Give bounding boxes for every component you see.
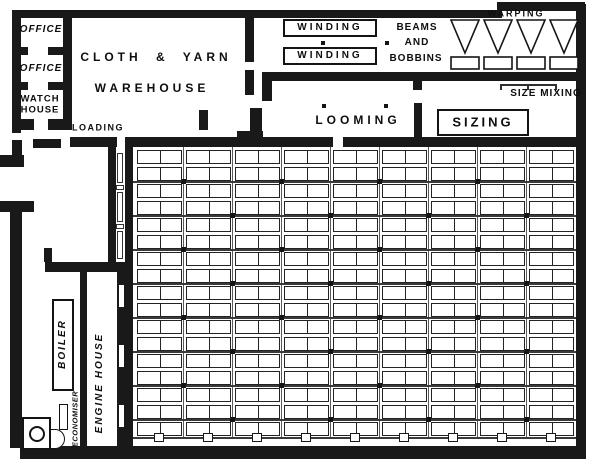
loom-unit (529, 201, 574, 215)
loom-unit (284, 252, 329, 266)
loom-unit (382, 201, 427, 215)
economiser-box (59, 404, 68, 430)
loom-unit (382, 286, 427, 300)
shed-alley-line (232, 147, 233, 437)
shaft-alley-wall (108, 147, 116, 262)
loom-unit (186, 286, 231, 300)
cross-shaft-line (133, 419, 576, 421)
loom-unit (333, 320, 378, 334)
warping-mill-triangle (517, 20, 545, 53)
loom-unit (431, 269, 476, 283)
loom-unit (480, 167, 525, 181)
engine-house-label: ENGINE HOUSE (95, 333, 105, 434)
loom-unit (480, 184, 525, 198)
wall (63, 90, 72, 120)
loom-unit (235, 269, 280, 283)
wall (48, 82, 72, 90)
loom-unit (333, 354, 378, 368)
wall (63, 55, 72, 83)
loom-unit (382, 218, 427, 232)
loom-unit (333, 269, 378, 283)
loom-unit (382, 337, 427, 351)
loom-unit (284, 167, 329, 181)
loom-unit (382, 167, 427, 181)
shed-column-footing (350, 433, 360, 442)
loom-unit (186, 405, 231, 419)
column-dot (322, 104, 326, 108)
loom-unit (137, 252, 182, 266)
loom-unit (137, 286, 182, 300)
warehouse-label-line1: CLOTH & YARN (80, 51, 231, 63)
winding-label-a: WINDING (297, 23, 362, 33)
shaft-alley-wall (125, 147, 133, 448)
cross-shaft-line (133, 181, 576, 183)
loom-unit (284, 201, 329, 215)
loom-unit (284, 303, 329, 317)
loom-unit (235, 252, 280, 266)
shed-alley-line (379, 147, 380, 437)
weaving-shed (133, 147, 576, 448)
shed-column-footing (203, 433, 213, 442)
loom-unit (480, 235, 525, 249)
loom-unit (137, 371, 182, 385)
loom-unit (333, 252, 378, 266)
loom-unit (186, 337, 231, 351)
loom-unit (137, 320, 182, 334)
loom-unit (186, 388, 231, 402)
loom-unit (284, 184, 329, 198)
loom-unit (480, 354, 525, 368)
loom-unit (529, 337, 574, 351)
loom-unit (529, 405, 574, 419)
loom-unit (186, 184, 231, 198)
loom-unit (186, 371, 231, 385)
loom-unit (480, 252, 525, 266)
office-top-label: OFFICE (20, 25, 63, 35)
loom-unit (186, 201, 231, 215)
loom-unit (431, 320, 476, 334)
shed-alley-line (526, 147, 527, 437)
loom-unit (186, 235, 231, 249)
size-mixing-bracket-tick (500, 84, 502, 90)
and-label: AND (405, 38, 430, 48)
column-dot (385, 41, 389, 45)
cross-shaft-line (133, 249, 576, 251)
shed-alley-line (281, 147, 282, 437)
wall (12, 10, 502, 18)
bobbins-label: BOBBINS (389, 54, 442, 64)
loom-unit (529, 286, 574, 300)
wall (33, 139, 61, 148)
wall (262, 81, 272, 101)
looming-label: LOOMING (315, 114, 400, 126)
warping-beam-box (451, 57, 479, 69)
shed-column-footing (252, 433, 262, 442)
wall (48, 47, 72, 55)
winding-label-b: WINDING (297, 51, 362, 61)
loom-unit (186, 252, 231, 266)
wall (10, 201, 22, 448)
watch-house-label-line1: WATCH (20, 94, 59, 104)
cross-shaft-line (133, 317, 576, 319)
wall (245, 10, 254, 62)
warehouse-label-line2: WAREHOUSE (95, 82, 210, 94)
loom-unit (431, 286, 476, 300)
cross-shaft-line (133, 215, 576, 217)
loom-unit (431, 337, 476, 351)
column-pillar (413, 81, 422, 90)
warping-mill-triangle (484, 20, 512, 53)
loom-unit (333, 235, 378, 249)
loom-unit (137, 354, 182, 368)
loom-unit (431, 201, 476, 215)
loom-unit (137, 201, 182, 215)
loom-unit (235, 286, 280, 300)
loom-unit (186, 218, 231, 232)
loom-unit (137, 303, 182, 317)
warping-machines (448, 19, 582, 71)
loom-unit (137, 269, 182, 283)
loom-unit (137, 184, 182, 198)
loom-unit (284, 269, 329, 283)
loom-unit (480, 320, 525, 334)
loom-unit (480, 269, 525, 283)
loom-unit (235, 405, 280, 419)
warping-label: WARPING (487, 10, 544, 19)
loom-unit (137, 150, 182, 164)
loom-unit (137, 167, 182, 181)
engine-house-north-wall (45, 262, 117, 272)
loom-unit (333, 303, 378, 317)
loom-unit (333, 184, 378, 198)
wall (12, 47, 28, 55)
loom-unit (284, 150, 329, 164)
warping-beam-box (484, 57, 512, 69)
loom-unit (137, 235, 182, 249)
loom-unit (529, 184, 574, 198)
loom-unit (480, 150, 525, 164)
loom-unit (137, 388, 182, 402)
loom-unit (333, 388, 378, 402)
loom-unit (235, 184, 280, 198)
loom-unit (284, 337, 329, 351)
loom-unit (137, 405, 182, 419)
loom-unit (284, 354, 329, 368)
loom-unit (431, 405, 476, 419)
loom-unit (284, 405, 329, 419)
loom-unit (235, 218, 280, 232)
loom-unit (529, 252, 574, 266)
loom-unit (186, 354, 231, 368)
loom-unit (382, 371, 427, 385)
window-slit (119, 345, 124, 367)
loom-unit (235, 388, 280, 402)
cross-shaft-line (133, 385, 576, 387)
loom-unit (431, 218, 476, 232)
cross-shaft-line (133, 283, 576, 285)
window-slit (119, 405, 124, 427)
loom-unit (431, 354, 476, 368)
loom-unit (382, 150, 427, 164)
loom-unit (480, 303, 525, 317)
window-slit (119, 285, 124, 307)
loom-unit (382, 184, 427, 198)
loom-unit (382, 388, 427, 402)
shed-column-footing (546, 433, 556, 442)
size-mixing-label: SIZE MIXING (510, 89, 582, 99)
chimney-circle (29, 426, 45, 442)
wall (63, 10, 72, 48)
loom-unit (431, 235, 476, 249)
loading-pillar (199, 110, 208, 130)
loom-unit (529, 354, 574, 368)
loom-unit (186, 150, 231, 164)
loom-unit (235, 303, 280, 317)
warping-beam-box (550, 57, 578, 69)
loom-unit (529, 218, 574, 232)
loom-unit (186, 167, 231, 181)
loom-unit (235, 371, 280, 385)
loom-unit (480, 388, 525, 402)
loom-unit (382, 405, 427, 419)
loom-unit (235, 167, 280, 181)
loom-unit (284, 286, 329, 300)
wall (44, 248, 52, 262)
loom-unit (431, 371, 476, 385)
loom-unit (529, 320, 574, 334)
loom-unit (529, 167, 574, 181)
loom-unit (382, 252, 427, 266)
loom-unit (137, 337, 182, 351)
loom-unit (382, 303, 427, 317)
watch-house-label-line2: HOUSE (21, 105, 60, 115)
loom-unit (382, 320, 427, 334)
sizing-label: SIZING (452, 116, 513, 129)
loom-unit (333, 167, 378, 181)
loom-unit (284, 320, 329, 334)
yard-gate-post (12, 140, 22, 167)
loom-unit (284, 371, 329, 385)
shed-column-footing (448, 433, 458, 442)
shed-alley-line (183, 147, 184, 437)
beams-label: BEAMS (396, 23, 437, 33)
loom-unit (529, 371, 574, 385)
shed-column-footing (154, 433, 164, 442)
boiler-engine-divider-wall (80, 272, 87, 448)
shaft-coupling (116, 185, 124, 190)
drive-shaft-segment (117, 192, 123, 222)
loom-unit (480, 405, 525, 419)
loom-unit (235, 354, 280, 368)
loom-unit (333, 337, 378, 351)
loom-unit (480, 286, 525, 300)
loom-unit (382, 235, 427, 249)
loom-unit (235, 320, 280, 334)
loom-unit (284, 388, 329, 402)
loom-unit (382, 354, 427, 368)
wall (70, 137, 117, 147)
boiler-label: BOILER (58, 319, 68, 369)
mill-floor-plan: OFFICE OFFICE WATCH HOUSE CLOTH & YARN W… (0, 0, 600, 464)
wall (12, 82, 28, 90)
loom-unit (529, 150, 574, 164)
loading-label: LOADING (72, 124, 124, 133)
wall (576, 4, 586, 452)
loom-unit (529, 303, 574, 317)
wall (343, 137, 576, 147)
loom-unit (382, 269, 427, 283)
loom-unit (480, 371, 525, 385)
loom-unit (431, 150, 476, 164)
loom-unit (529, 388, 574, 402)
loom-unit (186, 303, 231, 317)
shed-column-footing (301, 433, 311, 442)
loom-unit (137, 218, 182, 232)
loom-unit (235, 337, 280, 351)
loom-unit (431, 184, 476, 198)
loom-unit (431, 303, 476, 317)
column-dot (321, 41, 325, 45)
column-dot (384, 104, 388, 108)
loom-unit (284, 218, 329, 232)
loom-unit (333, 150, 378, 164)
loom-unit (529, 269, 574, 283)
wall (262, 72, 577, 81)
loom-unit (480, 337, 525, 351)
wall (125, 137, 333, 147)
loom-unit (333, 405, 378, 419)
loom-unit (235, 235, 280, 249)
loom-unit (235, 150, 280, 164)
loom-unit (235, 201, 280, 215)
loom-unit (431, 388, 476, 402)
wall (48, 119, 72, 130)
warping-mill-triangle (550, 20, 578, 53)
loom-unit (333, 371, 378, 385)
loom-unit (186, 269, 231, 283)
shed-alley-line (428, 147, 429, 437)
loom-unit (333, 286, 378, 300)
shed-alley-line (477, 147, 478, 437)
loom-unit (431, 252, 476, 266)
office-mid-label: OFFICE (20, 64, 63, 74)
shed-column-footing (399, 433, 409, 442)
loom-unit (284, 235, 329, 249)
drive-shaft-segment (117, 231, 123, 259)
cross-shaft-line (133, 351, 576, 353)
loom-unit (333, 201, 378, 215)
economiser-label: ECONOMISER (71, 391, 79, 447)
loom-unit (431, 167, 476, 181)
warping-beam-box (517, 57, 545, 69)
wall (245, 70, 254, 95)
shed-alley-line (330, 147, 331, 437)
shaft-coupling (116, 224, 124, 229)
loom-unit (480, 218, 525, 232)
loom-unit (186, 320, 231, 334)
warping-mill-triangle (451, 20, 479, 53)
wall (12, 119, 34, 130)
wall (414, 103, 422, 138)
loom-unit (333, 218, 378, 232)
loom-unit (480, 201, 525, 215)
loom-unit (529, 235, 574, 249)
drive-shaft-segment (117, 153, 123, 183)
shed-column-footing (497, 433, 507, 442)
